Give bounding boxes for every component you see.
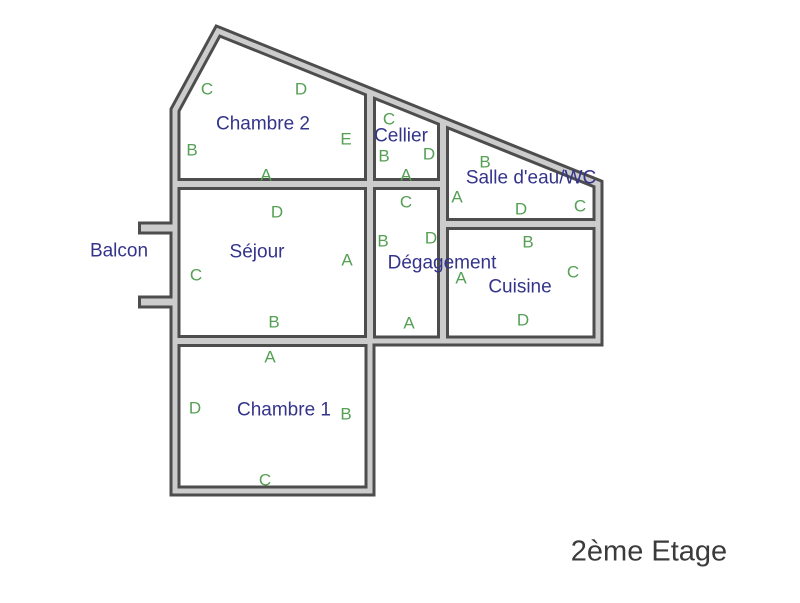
wall-letter-cuisine-top: B xyxy=(522,234,533,251)
wall-letter-cuisine-left: A xyxy=(455,270,466,287)
wall-letter-sejour-left: C xyxy=(190,267,202,284)
room-label-cuisine: Cuisine xyxy=(488,278,551,297)
wall-letter-sejour-right: A xyxy=(341,252,352,269)
wall-letter-salle-eau-top: B xyxy=(479,154,490,171)
wall-letter-chambre1-left: D xyxy=(189,400,201,417)
room-label-sejour: Séjour xyxy=(230,243,285,262)
wall-letter-chambre2-bottom: A xyxy=(260,167,271,184)
wall-letter-cellier-left: B xyxy=(378,148,389,165)
wall-letter-cellier-right: D xyxy=(423,146,435,163)
room-label-degagement: Dégagement xyxy=(388,254,497,273)
wall-letter-chambre2-top-right: D xyxy=(295,81,307,98)
wall-letter-cellier-bottom: A xyxy=(400,167,411,184)
wall-letter-chambre1-top: A xyxy=(264,349,275,366)
floor-title: 2ème Etage xyxy=(571,538,727,567)
wall-letter-salle-eau-right: C xyxy=(574,198,586,215)
wall-letter-salle-eau-left: A xyxy=(451,189,462,206)
room-label-cellier: Cellier xyxy=(374,127,428,146)
wall-letter-degagement-bottom: A xyxy=(403,315,414,332)
wall-letter-cellier-top: C xyxy=(383,111,395,128)
wall-letter-chambre1-right: B xyxy=(340,406,351,423)
wall-letter-chambre2-left: B xyxy=(186,142,197,159)
wall-letter-chambre1-bottom: C xyxy=(259,472,271,489)
balcony-walls-dark xyxy=(138,228,175,302)
wall-letter-salle-eau-bottom: D xyxy=(515,201,527,218)
room-label-balcon: Balcon xyxy=(90,242,148,261)
wall-letter-sejour-top: D xyxy=(271,204,283,221)
room-label-chambre-2: Chambre 2 xyxy=(216,115,310,134)
wall-letter-degagement-left: B xyxy=(377,233,388,250)
wall-letter-cuisine-bottom: D xyxy=(517,312,529,329)
wall-letter-sejour-bottom: B xyxy=(268,314,279,331)
floor-plan-walls xyxy=(0,0,800,603)
wall-letter-chambre2-top-left: C xyxy=(201,81,213,98)
wall-letter-degagement-top: C xyxy=(400,194,412,211)
wall-letter-chambre2-right: E xyxy=(340,131,351,148)
floor-plan: Chambre 2 Cellier Salle d'eau/WC Séjour … xyxy=(0,0,800,603)
wall-letter-degagement-right: D xyxy=(425,230,437,247)
wall-letter-cuisine-right: C xyxy=(567,264,579,281)
room-label-chambre-1: Chambre 1 xyxy=(237,401,331,420)
